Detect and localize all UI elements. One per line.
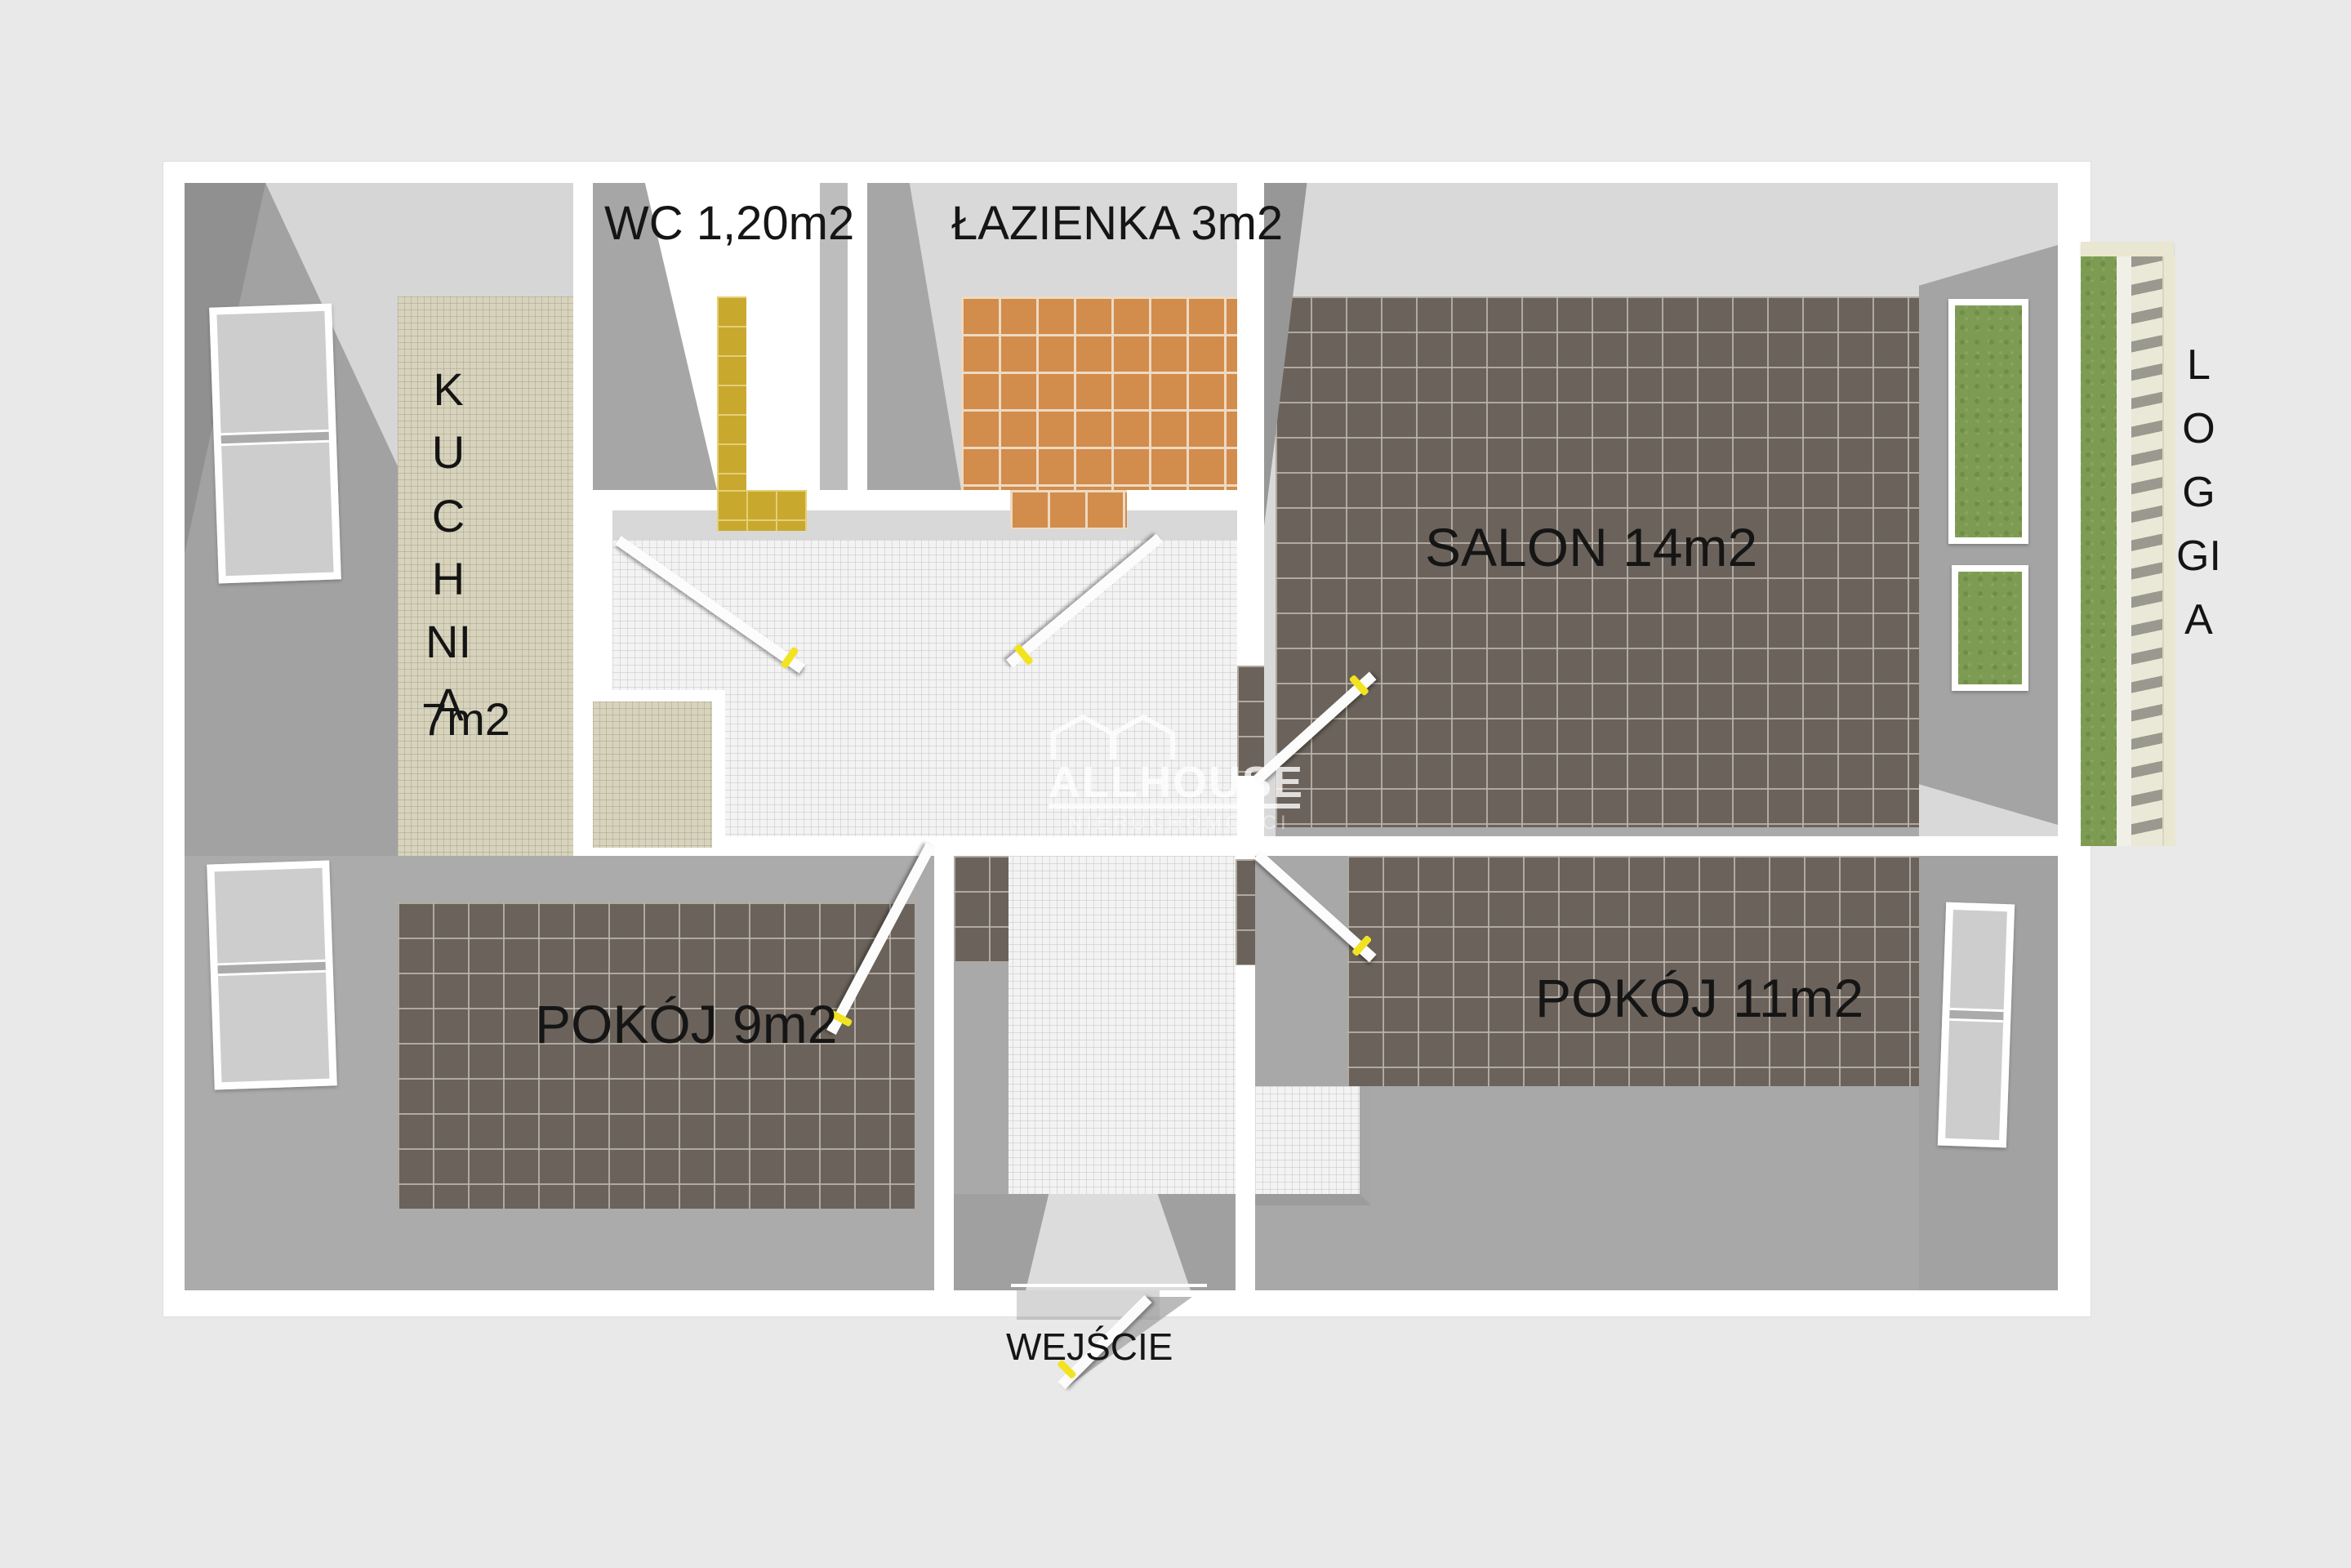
wejscie-label: WEJŚCIE (1006, 1325, 1173, 1369)
kuchnia-window-bar (221, 430, 329, 447)
salon-label: SALON 14m2 (1425, 516, 1757, 578)
watermark: ALLHOUSE NIERUCHOMOŚCI (1047, 712, 1325, 835)
pokoj11-doorway (1236, 859, 1255, 965)
hallway-ceiling-strip (612, 510, 1237, 540)
loggia-label: LOGGIA (2172, 333, 2225, 652)
pokoj11-label: POKÓJ 11m2 (1535, 967, 1863, 1029)
loggia (2081, 242, 2174, 846)
room-pokoj11 (1255, 856, 2058, 1290)
entry-mat (1026, 1194, 1191, 1290)
pokoj9-window-bar (217, 960, 325, 977)
room-kuchnia (185, 183, 573, 857)
loggia-walkway (2117, 256, 2131, 846)
pokoj9-window (207, 860, 337, 1089)
pokoj11-window-bar (1949, 1008, 2004, 1022)
room-salon (1264, 183, 2058, 836)
hallway-vertical (954, 856, 1236, 1290)
salon-window-low (1952, 565, 2028, 691)
pokoj9-floor (398, 902, 915, 1209)
salon-east-wall (1919, 245, 2058, 825)
wc-floor (717, 296, 746, 490)
pokoj9-label: POKÓJ 9m2 (535, 993, 837, 1055)
pokoj11-window (1938, 902, 2015, 1148)
lazienka-label: ŁAZIENKA 3m2 (951, 196, 1283, 251)
watermark-brand-text: ALLHOUSE (1049, 758, 1304, 807)
lazienka-floor (961, 296, 1237, 490)
entry-threshold-line (1011, 1284, 1207, 1287)
salon-south-wall (1276, 827, 1919, 836)
floorplan-stage: WC 1,20m2 ŁAZIENKA 3m2 SALON 14m2 POKÓJ … (0, 0, 2351, 1568)
wc-label: WC 1,20m2 (604, 196, 854, 251)
lazienka-west-wall (867, 183, 961, 490)
lazienka-doorway (1010, 490, 1127, 529)
door-handle (780, 646, 799, 669)
kuchnia-window (209, 303, 341, 583)
kuchnia-extension-floor (593, 690, 725, 848)
loggia-top-cap (2081, 242, 2174, 256)
salon-balcony-window (1948, 299, 2028, 544)
house-icon (1053, 717, 1173, 759)
pokoj9-doorway (954, 856, 1009, 962)
watermark-subtitle-text: NIERUCHOMOŚCI (1068, 811, 1290, 834)
kuchnia-area-label: 7m2 (421, 693, 510, 746)
hallway-nook (1255, 1086, 1371, 1205)
wc-doorway (717, 490, 807, 531)
pokoj11-east-wall (1919, 856, 2058, 1290)
room-pokoj9 (185, 856, 934, 1290)
loggia-railing (2131, 256, 2162, 846)
loggia-grass (2081, 256, 2117, 846)
kuchnia-label: KUCHNIA (420, 358, 477, 737)
entry-zone (954, 1194, 1236, 1290)
